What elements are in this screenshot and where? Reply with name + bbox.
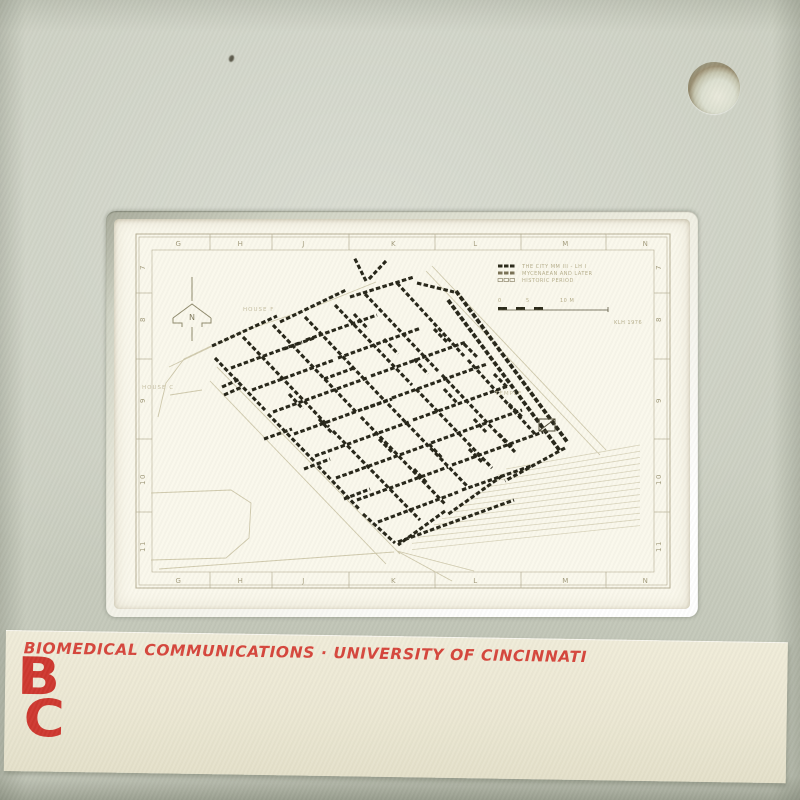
wall-segment	[462, 465, 534, 490]
shore-hatch-line	[458, 482, 640, 506]
wall-segment	[268, 414, 315, 462]
grid-letter: M	[562, 577, 570, 585]
wall-segment	[361, 417, 445, 504]
map-credit: KLH 1976	[614, 320, 642, 326]
wall-segment	[304, 459, 330, 469]
grid-letter: N	[643, 240, 650, 248]
mount-dimple	[688, 62, 740, 114]
wall-segment	[224, 387, 242, 395]
legend-entry: HISTORIC PERIOD	[522, 278, 574, 284]
grid-number: 8	[655, 316, 663, 322]
wall-segment	[444, 389, 458, 404]
wall-segment	[369, 261, 386, 279]
grid-numbers-left: 7 8 9 10 11	[139, 264, 147, 552]
wall-segment	[379, 439, 393, 453]
map-legend: THE CITY MM III - LH I MYCENAEAN AND LAT…	[498, 264, 593, 284]
grid-numbers-right: 7 8 9 10 11	[655, 264, 663, 552]
wall-segment	[294, 400, 388, 434]
wall-segment	[509, 404, 522, 417]
wall-segment	[365, 294, 438, 371]
wall-segment	[318, 466, 360, 510]
faint-line	[169, 282, 376, 367]
wall-segment	[474, 419, 486, 432]
wall-segment	[456, 291, 568, 443]
grid-letter: L	[473, 240, 478, 248]
wall-segment	[494, 374, 508, 388]
shore-hatch-line	[418, 513, 640, 537]
slide-mount: G H J K L M N G H J K L M N	[0, 0, 800, 800]
map-border	[136, 234, 670, 588]
faint-line	[210, 381, 386, 564]
wall-segment	[378, 492, 458, 522]
grid-letter: H	[238, 240, 245, 248]
bc-logo-b: B	[17, 658, 66, 697]
wall-segment	[289, 394, 303, 409]
shore-hatch-line	[466, 476, 640, 500]
shore-hatch-line	[442, 495, 640, 519]
shore-hatch-line	[506, 445, 640, 469]
grid-letter: J	[301, 240, 306, 248]
wall-segment	[231, 342, 302, 368]
site-map: G H J K L M N G H J K L M N	[114, 219, 690, 609]
wall-segment	[363, 514, 395, 543]
wall-segment	[388, 404, 467, 486]
wall-segment	[319, 419, 333, 434]
wall-segment	[414, 469, 427, 483]
slide-aperture-frame: G H J K L M N G H J K L M N	[106, 211, 698, 617]
faint-line	[397, 551, 474, 571]
wall-segment	[468, 360, 535, 434]
wall-segment	[413, 386, 508, 420]
wall-segment	[315, 422, 409, 456]
house-c-label: HOUSE C	[142, 385, 174, 391]
wall-segment	[447, 476, 502, 515]
wall-segment	[215, 358, 265, 410]
wall-segment	[398, 500, 514, 542]
wall-segment	[273, 325, 357, 413]
wall-segment	[384, 339, 398, 354]
shore-hatch-layer	[412, 445, 640, 550]
scale-bar: 0 5 10 M KLH 1976	[498, 298, 642, 326]
wall-segment	[354, 314, 368, 329]
shore-hatch-line	[482, 464, 640, 488]
wall-segment	[273, 378, 367, 412]
grid-letter: K	[391, 577, 397, 585]
grid-number: 11	[139, 540, 147, 552]
shore-hatch-line	[490, 457, 640, 481]
wall-segment	[469, 449, 483, 463]
wall-segment	[371, 342, 466, 376]
shore-hatch-line	[412, 519, 640, 543]
wall-segment	[414, 359, 428, 374]
wall-segment	[324, 368, 354, 379]
shore-hatch-line	[450, 488, 640, 512]
faint-line	[397, 551, 452, 581]
wall-segment	[306, 315, 377, 340]
scale-tick-label: 10 M	[560, 298, 574, 304]
faint-line	[151, 490, 251, 560]
wall-segment	[243, 337, 329, 427]
faint-line	[159, 552, 394, 569]
wall-segment	[434, 329, 448, 343]
wall-segment	[448, 300, 560, 451]
grid-number: 9	[655, 397, 663, 403]
roadside-structure	[539, 419, 555, 431]
grid-number: 10	[139, 473, 147, 485]
scale-tick-label: 5	[526, 298, 530, 304]
wall-segment	[336, 445, 427, 478]
wall-segment	[335, 305, 412, 385]
grid-number: 11	[655, 540, 663, 552]
wall-segment	[416, 389, 492, 468]
wall-segment	[499, 434, 513, 448]
grid-number: 9	[139, 397, 147, 403]
wall-segment	[280, 290, 346, 322]
grid-letter: G	[176, 577, 183, 585]
scale-tick-label: 0	[498, 298, 502, 304]
wall-segment	[442, 375, 515, 452]
grid-number: 10	[655, 473, 663, 485]
grid-letter: M	[562, 240, 570, 248]
wall-segment	[333, 431, 420, 520]
legend-entry: MYCENAEAN AND LATER	[522, 271, 593, 277]
grid-number: 7	[655, 264, 663, 270]
grid-letter: G	[176, 240, 183, 248]
wall-segment	[284, 338, 314, 349]
map-annotations: HOUSE F HOUSE C TEMPLE	[142, 307, 522, 397]
wall-segment	[305, 317, 384, 400]
wall-segment	[398, 511, 445, 545]
legend-entry: THE CITY MM III - LH I	[521, 264, 586, 270]
wall-segment	[264, 429, 292, 439]
faint-line	[170, 390, 202, 395]
faint-line	[432, 266, 606, 450]
wall-segment	[505, 448, 565, 481]
wall-segment	[464, 344, 478, 358]
wall-segment	[344, 489, 370, 499]
film-frame: G H J K L M N G H J K L M N	[114, 219, 690, 609]
wall-segment	[431, 410, 522, 443]
house-f-label: HOUSE F	[243, 307, 274, 313]
faint-topography-layer	[151, 266, 606, 581]
grid-letter: L	[473, 577, 478, 585]
north-label: N	[189, 313, 195, 322]
wall-segment	[350, 277, 414, 297]
faint-line	[217, 367, 400, 554]
wall-segment	[252, 360, 334, 390]
wall-segment	[222, 379, 240, 387]
wall-segment	[212, 316, 277, 346]
grid-number: 7	[139, 264, 147, 270]
grid-letter: J	[301, 577, 306, 585]
shore-hatch-line	[498, 451, 640, 475]
wall-layer	[212, 257, 568, 545]
dust-speck	[228, 54, 235, 62]
grid-letter: N	[643, 577, 650, 585]
grid-ticks	[136, 234, 670, 588]
north-arrow: N	[173, 277, 211, 341]
wall-segment	[357, 467, 448, 500]
faint-line	[158, 346, 211, 417]
shore-hatch-line	[412, 526, 640, 550]
grid-letter: H	[238, 577, 245, 585]
bc-logo-c: C	[23, 700, 65, 739]
wall-segment	[392, 364, 487, 398]
label-strip: BIOMEDICAL COMMUNICATIONS · UNIVERSITY O…	[4, 630, 788, 783]
temple-label: TEMPLE	[494, 391, 522, 397]
wall-segment	[354, 257, 366, 281]
shore-hatch-line	[434, 501, 640, 525]
grid-number: 8	[139, 316, 147, 322]
label-title: BIOMEDICAL COMMUNICATIONS · UNIVERSITY O…	[24, 639, 588, 666]
grid-letter: K	[391, 240, 397, 248]
wall-segment	[397, 283, 464, 356]
bc-logo: B C	[16, 656, 65, 741]
grid-letters-bottom: G H J K L M N	[176, 577, 650, 585]
shore-hatch-line	[426, 507, 640, 531]
wall-segment	[364, 399, 392, 409]
wall-segment	[452, 432, 543, 465]
wall-segment	[417, 283, 454, 292]
faint-line	[426, 271, 600, 455]
wall-segment	[429, 444, 443, 459]
shore-hatch-line	[474, 470, 640, 494]
wall-segment	[338, 328, 421, 358]
grid-letters-top: G H J K L M N	[176, 240, 650, 248]
